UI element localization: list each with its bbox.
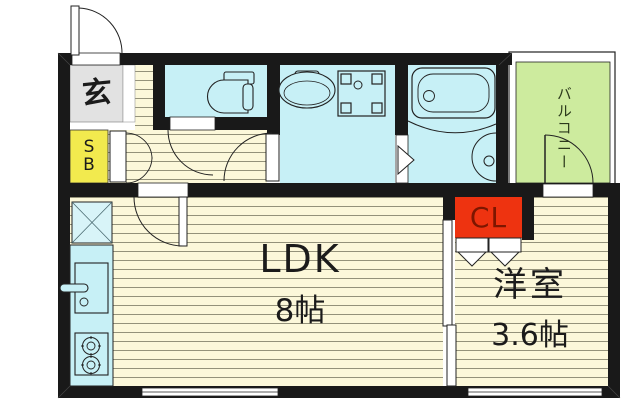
washing-machine-pan-icon bbox=[338, 71, 385, 116]
entrance-step bbox=[123, 65, 135, 122]
bathtub-icon bbox=[412, 68, 495, 118]
wall-left bbox=[58, 53, 70, 398]
ldk-window bbox=[142, 388, 278, 396]
wall-right bbox=[608, 183, 620, 398]
ldk-label: LDK bbox=[175, 237, 425, 283]
sliding-door-panel-upper bbox=[443, 220, 452, 326]
closet-label: CL bbox=[455, 197, 522, 238]
wall-toilet-washroom bbox=[267, 53, 280, 135]
wall-sliding-stub bbox=[443, 183, 455, 220]
toilet-door-opening bbox=[170, 117, 215, 130]
washroom-door-leaf bbox=[266, 134, 279, 181]
front-door-leaf bbox=[71, 6, 79, 55]
ldk-size-label: 8帖 bbox=[175, 291, 425, 331]
washbasin-icon bbox=[279, 71, 335, 108]
western-room-window bbox=[468, 388, 602, 396]
wall-top bbox=[58, 53, 512, 65]
western-room-label: 洋室 bbox=[455, 264, 605, 308]
western-room-size-label: 3.6帖 bbox=[450, 316, 610, 356]
closet-bifold-panel-left bbox=[456, 238, 488, 252]
wall-washroom-bath bbox=[395, 53, 408, 135]
entrance-label: 玄 bbox=[70, 62, 123, 125]
shoebox-door-panel bbox=[110, 131, 126, 182]
closet-bifold-panel-right bbox=[489, 238, 521, 252]
wall-bath-right bbox=[496, 53, 508, 197]
wall-closet-right bbox=[522, 183, 534, 240]
floor-plan: 玄 S B CL LDK 8帖 洋室 3.6帖 バルコニー bbox=[0, 0, 640, 400]
balcony-door-opening bbox=[543, 184, 593, 197]
front-door-arc bbox=[79, 8, 122, 54]
ldk-door-opening bbox=[138, 183, 188, 197]
refrigerator-space-icon bbox=[72, 202, 112, 243]
hallway-floor bbox=[108, 130, 267, 183]
balcony-label: バルコニー bbox=[551, 76, 575, 180]
shoe-box-label: S B bbox=[70, 130, 108, 183]
